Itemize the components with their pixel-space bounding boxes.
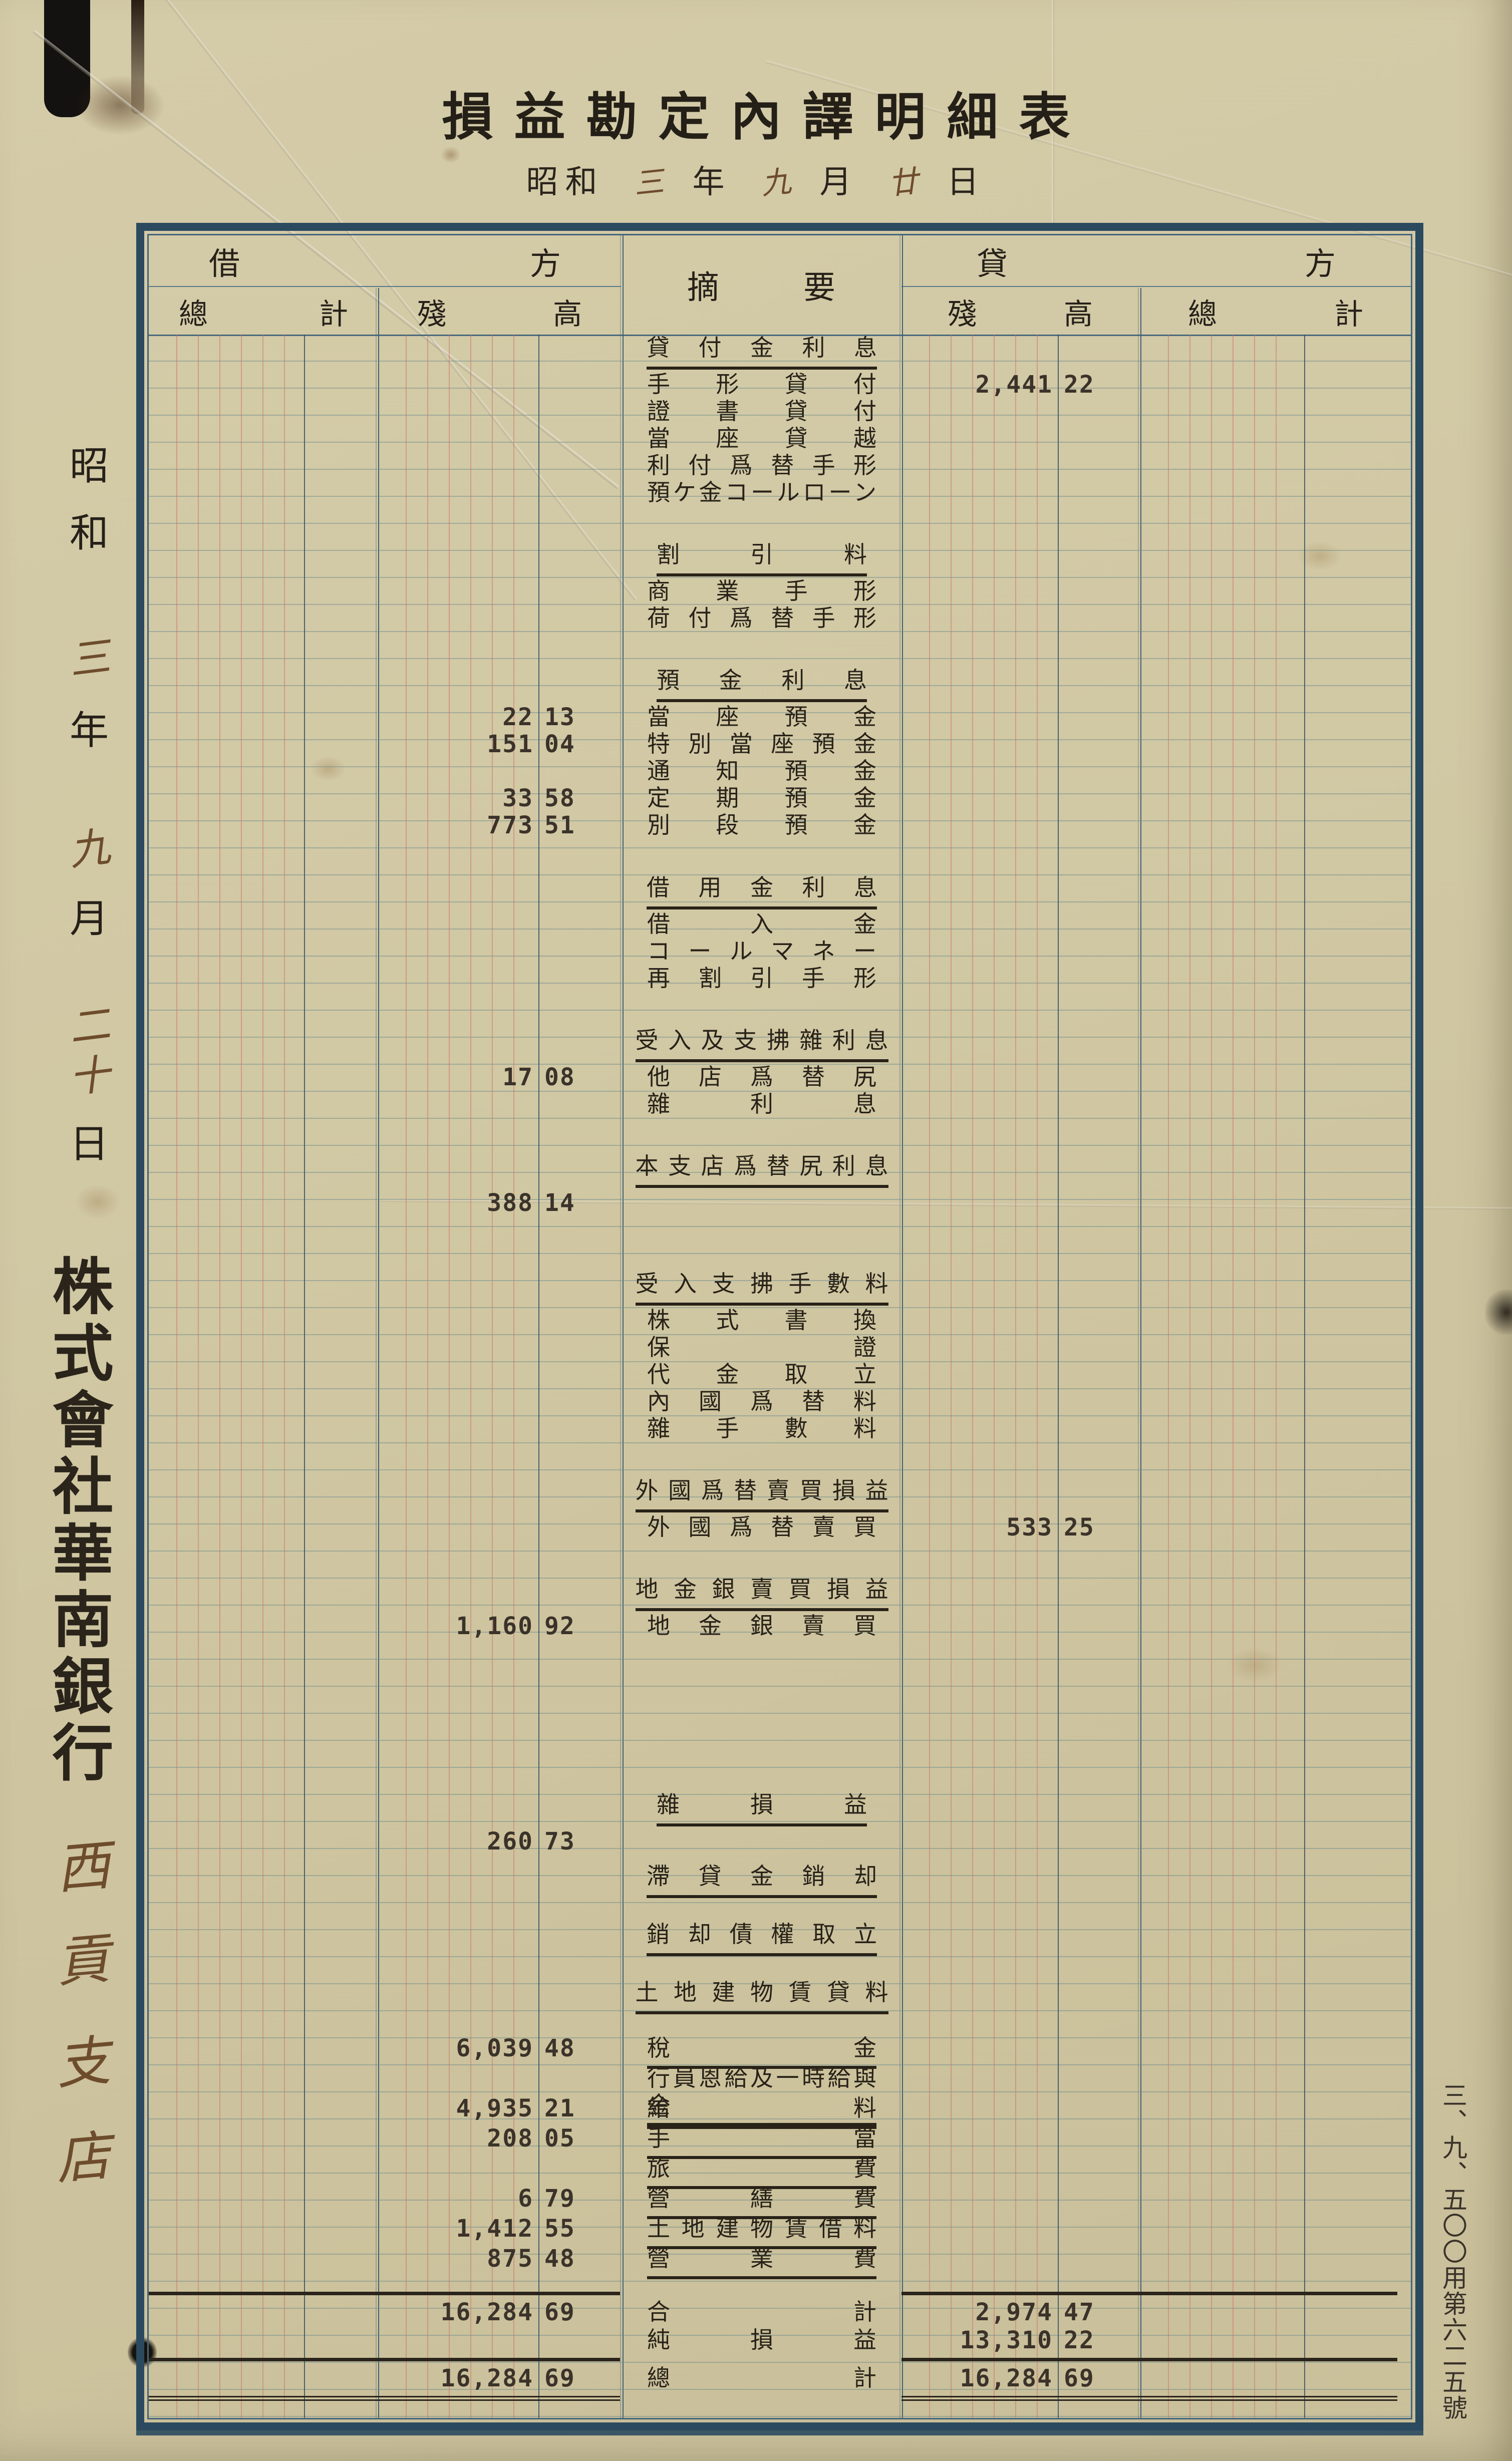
row-label: 通知預金 xyxy=(647,758,876,785)
debit-amount: 151 xyxy=(379,731,533,758)
column-header-credit-total: 總計 xyxy=(1140,288,1411,335)
row-label: 借入金 xyxy=(647,911,876,938)
ledger-row: 銷却債權取立 xyxy=(149,1921,1411,1948)
row-label: 營業費 xyxy=(647,2245,876,2279)
date-printed-text: 日 xyxy=(947,156,986,202)
row-label: 株式書換 xyxy=(647,1307,876,1334)
row-label: 受入及支拂雜利息 xyxy=(622,1027,901,1062)
margin-date-char: 三 xyxy=(56,622,123,688)
debit-amount: 1,412 xyxy=(379,2215,533,2242)
date-handwritten-char: 廿 xyxy=(885,157,920,203)
row-label: 荷付爲替手形 xyxy=(647,605,876,632)
ledger-row: 別段預金77351 xyxy=(149,812,1411,839)
row-label: 保證 xyxy=(647,1334,876,1361)
row-label: 外國爲替賣買損益 xyxy=(622,1477,901,1512)
ledger-row: 土地建物賃借料1,41255 xyxy=(149,2215,1411,2242)
column-header-debit-total: 總計 xyxy=(149,288,378,335)
row-label: 雜手數料 xyxy=(647,1415,876,1442)
ledger-row: 雜手數料 xyxy=(149,1415,1411,1442)
column-header-credit-balance: 殘高 xyxy=(901,288,1139,335)
ledger-row: 代金取立 xyxy=(149,1361,1411,1388)
row-label: 土地建物賃借料 xyxy=(647,2215,876,2249)
debit-cents: 04 xyxy=(544,731,575,758)
debit-cents: 14 xyxy=(544,1189,575,1216)
debit-amount: 16,284 xyxy=(379,2365,533,2392)
table-header: 借方 貸方 摘要 總計 殘高 殘高 總計 xyxy=(149,235,1411,336)
debit-cents: 69 xyxy=(544,2365,575,2392)
margin-date-char: 十 xyxy=(56,1039,123,1106)
debit-cents: 08 xyxy=(544,1064,575,1091)
form-number: 三、九、五〇〇用第六二五號 xyxy=(1438,2082,1467,2421)
debit-amount: 208 xyxy=(379,2125,533,2152)
credit-cents: 22 xyxy=(1064,2327,1095,2354)
row-label: コールマネー xyxy=(647,938,876,965)
date-handwritten-char: 三 xyxy=(631,157,666,203)
row-label: 受入支拂手數料 xyxy=(622,1271,901,1306)
row-label: 代金取立 xyxy=(647,1361,876,1388)
date-line: 昭和三年九月廿日 xyxy=(0,156,1512,202)
ledger-row: 借入金 xyxy=(149,911,1411,938)
debit-cents: 92 xyxy=(544,1613,575,1640)
debit-cents: 55 xyxy=(544,2215,575,2242)
row-label: 他店爲替尻 xyxy=(647,1064,876,1091)
debit-amount: 17 xyxy=(379,1064,533,1091)
row-label: 地金銀賣買損益 xyxy=(622,1576,901,1611)
ledger-row: 地金銀賣買損益 xyxy=(149,1576,1411,1603)
ledger-row: 定期預金3358 xyxy=(149,785,1411,812)
credit-cents: 47 xyxy=(1064,2299,1095,2326)
row-label: 利付爲替手形 xyxy=(647,452,876,479)
ledger-row: 雜利息 xyxy=(149,1091,1411,1118)
ledger-row: 證書貸付 xyxy=(149,398,1411,425)
margin-date-char: 月 xyxy=(59,887,119,944)
ledger-row: 土地建物賃貸料 xyxy=(149,1979,1411,2006)
ledger-row: 合計16,284692,97447 xyxy=(149,2299,1411,2326)
row-label: 合計 xyxy=(647,2299,876,2326)
ledger-row: コールマネー xyxy=(149,938,1411,965)
credit-amount: 13,310 xyxy=(902,2327,1053,2354)
ledger-row: 38814 xyxy=(149,1189,1411,1216)
debit-amount: 22 xyxy=(379,704,533,731)
debit-cents: 69 xyxy=(544,2299,575,2326)
ledger-row: 受入及支拂雜利息 xyxy=(149,1027,1411,1054)
branch-char: 貢 xyxy=(49,1915,116,1998)
date-handwritten-char: 九 xyxy=(758,157,793,203)
row-label: 雜損益 xyxy=(622,1791,901,1826)
ledger-body: 貸付金利息手形貸付2,44122證書貸付當座貸越利付爲替手形預ケ金コールローン割… xyxy=(149,335,1411,2418)
credit-amount: 2,441 xyxy=(902,371,1053,398)
ledger-row: 行員恩給及一時給與金 xyxy=(149,2065,1411,2092)
credit-amount: 533 xyxy=(902,1514,1053,1541)
row-label: 證書貸付 xyxy=(647,398,876,425)
debit-cents: 05 xyxy=(544,2125,575,2152)
debit-cents: 13 xyxy=(544,704,575,731)
branch-char: 支 xyxy=(49,2017,116,2100)
credit-cents: 22 xyxy=(1064,371,1095,398)
row-label: 貸付金利息 xyxy=(622,335,901,370)
company-name: 株式會社華南銀行 xyxy=(39,1255,114,1787)
ledger-row: 利付爲替手形 xyxy=(149,452,1411,479)
separator-rule xyxy=(149,2393,1411,2420)
row-label: 預ケ金コールローン xyxy=(647,479,876,506)
ledger-row: 手當20805 xyxy=(149,2125,1411,2152)
debit-amount: 875 xyxy=(379,2245,533,2272)
row-label: 純損益 xyxy=(647,2327,876,2354)
date-printed-text: 昭和 xyxy=(526,156,604,202)
debit-amount: 4,935 xyxy=(379,2095,533,2122)
margin-date-char: 和 xyxy=(59,502,119,558)
branch-char: 店 xyxy=(49,2112,116,2195)
ledger-row: 株式書換 xyxy=(149,1307,1411,1334)
row-label: 滯貸金銷却 xyxy=(622,1863,901,1898)
ledger-sheet: 損益勘定內譯明細表 昭和三年九月廿日 昭和三年九月二十日 株式會社華南銀行 西貢… xyxy=(0,0,1512,2461)
row-label: 預金利息 xyxy=(622,667,901,702)
ledger-row: 26073 xyxy=(149,1828,1411,1855)
foxing-spot xyxy=(75,1184,120,1219)
row-label: 特別當座預金 xyxy=(647,731,876,758)
debit-amount: 388 xyxy=(379,1189,533,1216)
row-label: 手當 xyxy=(647,2125,876,2159)
credit-amount: 16,284 xyxy=(902,2365,1053,2392)
credit-cents: 25 xyxy=(1064,1514,1095,1541)
debit-cents: 48 xyxy=(544,2035,575,2062)
ledger-row: 稅金6,03948 xyxy=(149,2035,1411,2062)
ledger-row: 給料4,93521 xyxy=(149,2095,1411,2122)
ledger-row: 割引料 xyxy=(149,541,1411,568)
ledger-row: 他店爲替尻1708 xyxy=(149,1064,1411,1091)
ledger-row: 營繕費679 xyxy=(149,2185,1411,2212)
ledger-row: 借用金利息 xyxy=(149,874,1411,901)
ink-stain xyxy=(1485,1290,1512,1335)
debit-amount: 6,039 xyxy=(379,2035,533,2062)
column-header-credit: 貸方 xyxy=(901,235,1411,287)
row-label: 給料 xyxy=(647,2095,876,2129)
ledger-row: 受入支拂手數料 xyxy=(149,1271,1411,1298)
ledger-row: 再割引手形 xyxy=(149,965,1411,992)
date-printed-text: 年 xyxy=(693,156,732,202)
ledger-row: 商業手形 xyxy=(149,578,1411,605)
ledger-row: 保證 xyxy=(149,1334,1411,1361)
ledger-row: 貸付金利息 xyxy=(149,335,1411,362)
row-label: 銷却債權取立 xyxy=(622,1921,901,1956)
credit-cents: 69 xyxy=(1064,2365,1095,2392)
row-label: 總計 xyxy=(647,2365,876,2392)
ledger-row: 當座預金2213 xyxy=(149,704,1411,731)
ledger-table: 借方 貸方 摘要 總計 殘高 殘高 總計 貸付金利息手形貸付2,44 xyxy=(136,223,1423,2430)
debit-cents: 58 xyxy=(544,785,575,812)
row-label: 旅費 xyxy=(647,2155,876,2189)
ledger-row: 外國爲替賣買53325 xyxy=(149,1514,1411,1541)
row-label: 營繕費 xyxy=(647,2185,876,2219)
column-header-debit-balance: 殘高 xyxy=(378,288,621,335)
debit-amount: 6 xyxy=(379,2185,533,2212)
debit-amount: 773 xyxy=(379,812,533,839)
margin-date-char: 昭 xyxy=(59,435,119,491)
ledger-row: 通知預金 xyxy=(149,758,1411,785)
row-label: 再割引手形 xyxy=(647,965,876,992)
row-label: 雜利息 xyxy=(647,1091,876,1118)
ledger-row: 預金利息 xyxy=(149,667,1411,694)
row-label: 當座預金 xyxy=(647,704,876,731)
table-inner-frame: 借方 貸方 摘要 總計 殘高 殘高 總計 貸付金利息手形貸付2,44 xyxy=(147,234,1412,2419)
ledger-row: 雜損益 xyxy=(149,1791,1411,1818)
branch-char: 西 xyxy=(49,1821,116,1905)
row-label: 內國爲替料 xyxy=(647,1388,876,1415)
row-label: 稅金 xyxy=(647,2035,876,2069)
debit-cents: 48 xyxy=(544,2245,575,2272)
row-label: 當座貸越 xyxy=(647,425,876,452)
row-label: 本支店爲替尻利息 xyxy=(622,1153,901,1188)
ledger-row: 總計16,2846916,28469 xyxy=(149,2365,1411,2392)
debit-amount: 33 xyxy=(379,785,533,812)
page-title: 損益勘定內譯明細表 xyxy=(0,76,1512,150)
margin-date-char: 年 xyxy=(59,699,119,755)
row-label: 外國爲替賣買 xyxy=(647,1514,876,1541)
margin-date-char: 九 xyxy=(56,812,123,878)
row-label: 割引料 xyxy=(622,541,901,576)
debit-cents: 79 xyxy=(544,2185,575,2212)
date-printed-text: 月 xyxy=(820,156,859,202)
debit-cents: 73 xyxy=(544,1828,575,1855)
debit-amount: 16,284 xyxy=(379,2299,533,2326)
debit-cents: 21 xyxy=(544,2095,575,2122)
ledger-row: 旅費 xyxy=(149,2155,1411,2182)
ledger-row: 內國爲替料 xyxy=(149,1388,1411,1415)
credit-amount: 2,974 xyxy=(902,2299,1053,2326)
ledger-row: 外國爲替賣買損益 xyxy=(149,1477,1411,1504)
column-header-summary: 摘要 xyxy=(622,235,900,335)
ledger-row: 荷付爲替手形 xyxy=(149,605,1411,632)
row-label: 地金銀賣買 xyxy=(647,1613,876,1640)
ledger-row: 當座貸越 xyxy=(149,425,1411,452)
margin-date-char: 日 xyxy=(59,1113,119,1169)
row-label: 土地建物賃貸料 xyxy=(622,1979,901,2014)
ledger-row: 手形貸付2,44122 xyxy=(149,371,1411,398)
ledger-row: 特別當座預金15104 xyxy=(149,731,1411,758)
ledger-row: 滯貸金銷却 xyxy=(149,1863,1411,1890)
ledger-row: 純損益13,31022 xyxy=(149,2327,1411,2354)
row-label: 借用金利息 xyxy=(622,874,901,909)
ledger-row: 地金銀賣買1,16092 xyxy=(149,1613,1411,1640)
row-label: 別段預金 xyxy=(647,812,876,839)
debit-amount: 1,160 xyxy=(379,1613,533,1640)
row-label: 手形貸付 xyxy=(647,371,876,398)
ledger-row: 預ケ金コールローン xyxy=(149,479,1411,506)
debit-cents: 51 xyxy=(544,812,575,839)
row-label: 商業手形 xyxy=(647,578,876,605)
ledger-row: 本支店爲替尻利息 xyxy=(149,1153,1411,1180)
column-header-debit: 借方 xyxy=(149,235,621,287)
debit-amount: 260 xyxy=(379,1828,533,1855)
ledger-row: 營業費87548 xyxy=(149,2245,1411,2272)
row-label: 定期預金 xyxy=(647,785,876,812)
